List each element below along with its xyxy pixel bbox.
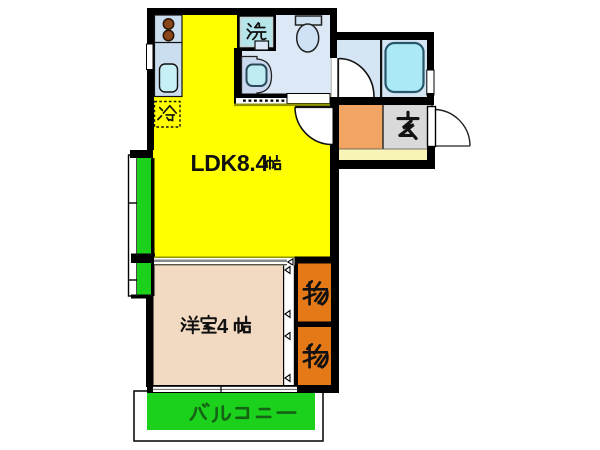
svg-text:LDK8.4: LDK8.4: [191, 150, 269, 176]
svg-text:4: 4: [217, 316, 229, 338]
